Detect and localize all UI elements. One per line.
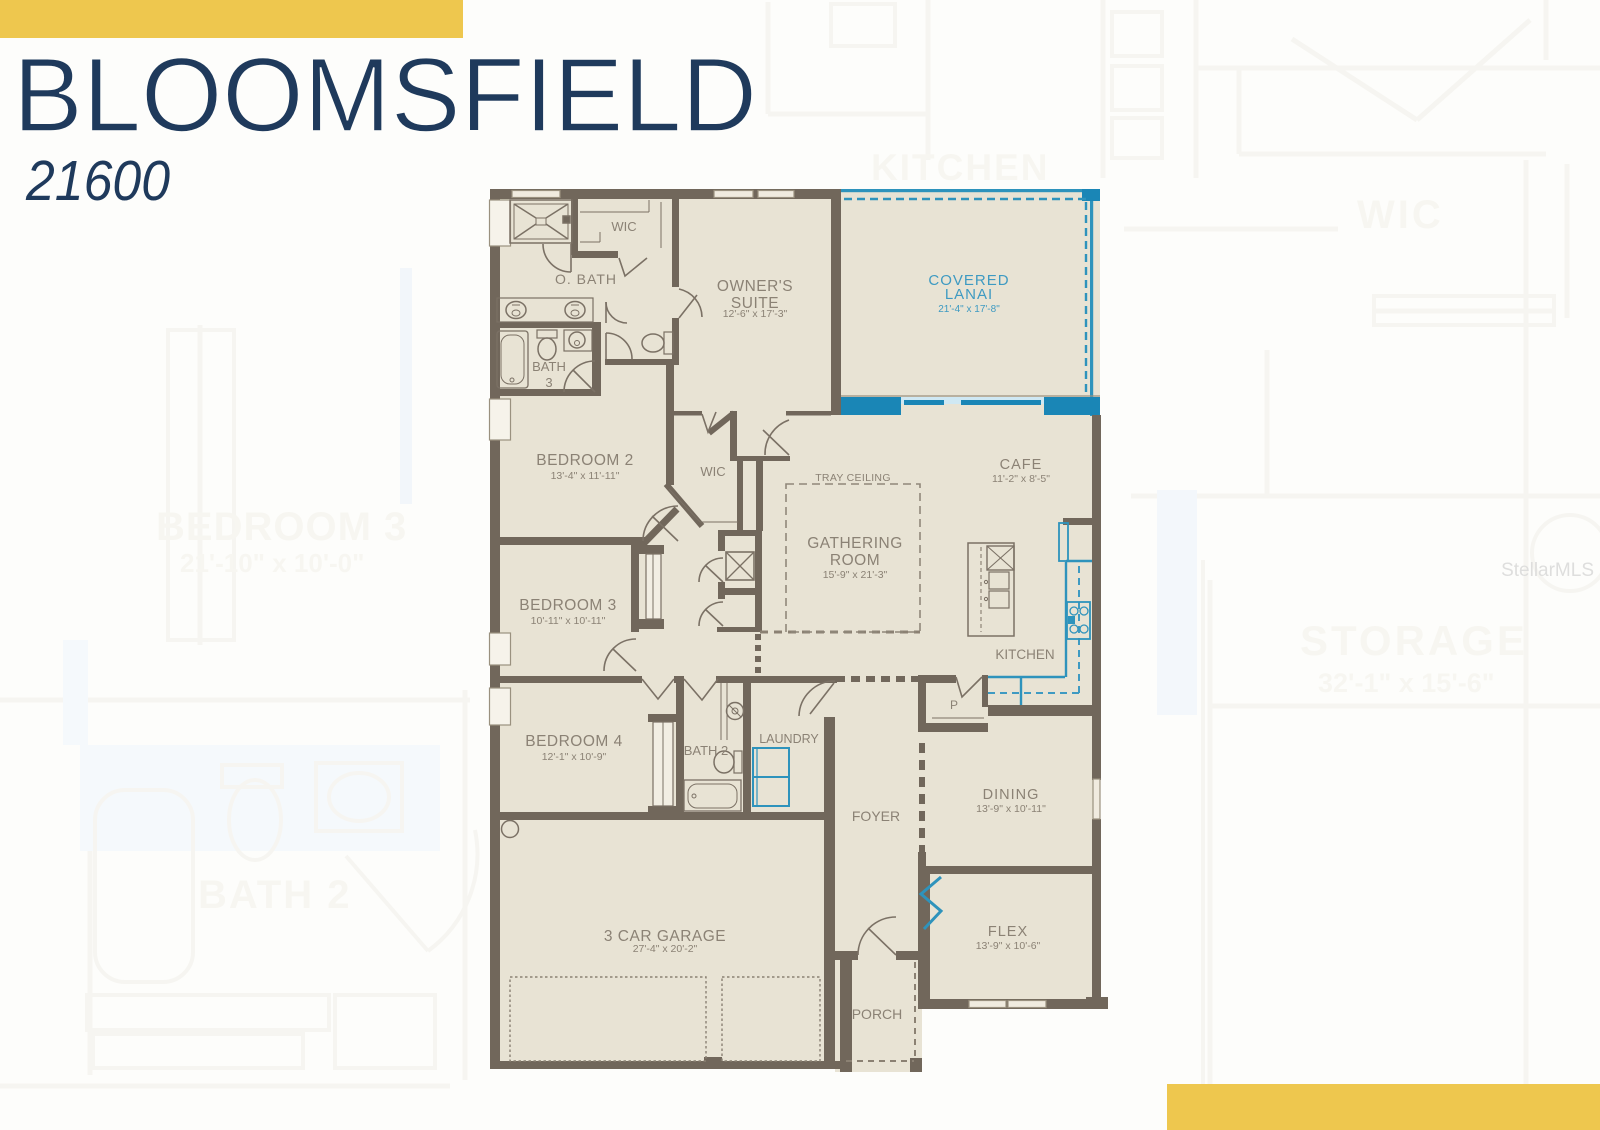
svg-text:27'-4" x 20'-2": 27'-4" x 20'-2" xyxy=(633,943,698,955)
svg-text:PORCH: PORCH xyxy=(852,1006,903,1022)
svg-text:13'-4" x 11'-11": 13'-4" x 11'-11" xyxy=(551,470,620,482)
svg-text:BEDROOM 2: BEDROOM 2 xyxy=(536,452,634,469)
svg-text:BATH 2: BATH 2 xyxy=(198,873,351,917)
svg-text:TRAY CEILING: TRAY CEILING xyxy=(815,472,891,484)
svg-text:32'-1" x 15'-6": 32'-1" x 15'-6" xyxy=(1318,668,1495,698)
svg-text:BEDROOM 4: BEDROOM 4 xyxy=(525,733,623,750)
svg-text:StellarMLS: StellarMLS xyxy=(1501,560,1594,581)
svg-text:10'-11" x 10'-11": 10'-11" x 10'-11" xyxy=(531,615,606,627)
svg-text:12'-6" x 17'-3": 12'-6" x 17'-3" xyxy=(723,308,788,320)
svg-text:P: P xyxy=(950,698,958,712)
svg-text:21'-4" x 17'-8": 21'-4" x 17'-8" xyxy=(938,304,1000,315)
svg-text:FLEX: FLEX xyxy=(988,924,1028,940)
svg-text:ROOM: ROOM xyxy=(830,552,880,569)
svg-text:BLOOMSFIELD: BLOOMSFIELD xyxy=(13,37,757,154)
svg-text:WIC: WIC xyxy=(1357,193,1444,237)
svg-text:15'-9" x 21'-3": 15'-9" x 21'-3" xyxy=(823,569,888,581)
svg-text:STORAGE: STORAGE xyxy=(1300,617,1528,664)
svg-text:13'-9" x 10'-11": 13'-9" x 10'-11" xyxy=(976,803,1046,815)
svg-text:KITCHEN: KITCHEN xyxy=(871,147,1049,188)
svg-text:FOYER: FOYER xyxy=(852,808,900,824)
svg-text:13'-9" x 10'-6": 13'-9" x 10'-6" xyxy=(976,940,1041,952)
svg-text:BEDROOM 3: BEDROOM 3 xyxy=(519,597,617,614)
svg-text:WIC: WIC xyxy=(611,219,636,234)
svg-text:BATH: BATH xyxy=(532,359,566,374)
svg-text:GATHERING: GATHERING xyxy=(807,535,903,552)
svg-text:BATH 2: BATH 2 xyxy=(684,743,729,758)
svg-text:OWNER'S: OWNER'S xyxy=(717,278,793,295)
svg-text:LANAI: LANAI xyxy=(945,286,993,303)
svg-text:O. BATH: O. BATH xyxy=(555,271,617,287)
svg-text:11'-2" x 8'-5": 11'-2" x 8'-5" xyxy=(992,473,1050,485)
svg-text:12'-1" x 10'-9": 12'-1" x 10'-9" xyxy=(542,751,607,763)
svg-text:21600: 21600 xyxy=(25,149,170,213)
svg-text:3: 3 xyxy=(545,375,552,390)
svg-text:21'-10" x 10'-0": 21'-10" x 10'-0" xyxy=(180,548,364,578)
svg-text:WIC: WIC xyxy=(700,464,725,479)
svg-text:KITCHEN: KITCHEN xyxy=(995,647,1054,662)
svg-text:BEDROOM 3: BEDROOM 3 xyxy=(156,505,407,549)
svg-text:LAUNDRY: LAUNDRY xyxy=(759,732,819,746)
svg-text:CAFE: CAFE xyxy=(1000,457,1043,473)
svg-text:DINING: DINING xyxy=(983,787,1040,803)
